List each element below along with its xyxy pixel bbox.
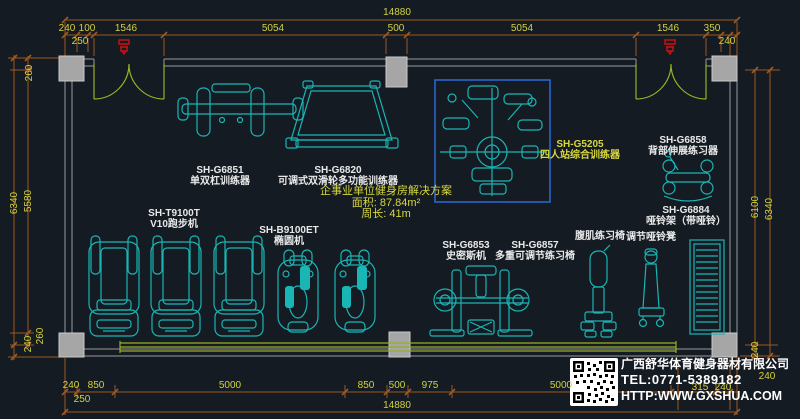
name: 背部伸展练习器 bbox=[648, 146, 718, 157]
dim-bottom: 850 bbox=[358, 381, 375, 391]
dim-left: 240 bbox=[24, 336, 34, 353]
model: SH-B9100ET bbox=[259, 225, 318, 236]
dim-right: 240 bbox=[751, 342, 761, 359]
equipment-sh-g6884 bbox=[690, 240, 724, 334]
name: 史密斯机 bbox=[442, 251, 489, 262]
dim-left: 5580 bbox=[24, 190, 34, 212]
solution-text: 企事业单位健身房解决方案 面积: 87.84m² 周长: 41m bbox=[320, 186, 452, 221]
dim-bottom: 240 bbox=[63, 381, 80, 391]
name: 腹肌练习椅 bbox=[575, 231, 625, 242]
dim-top-total: 14880 bbox=[383, 8, 411, 18]
name: 椭圆机 bbox=[259, 236, 318, 247]
column bbox=[59, 56, 84, 81]
label-sh-g6820: SH-G6820 可调式双滑轮多功能训练器 bbox=[278, 165, 398, 187]
column bbox=[386, 57, 407, 87]
dim-left: 6340 bbox=[10, 192, 20, 214]
dim-top: 1546 bbox=[657, 24, 679, 34]
dim-top: 5054 bbox=[511, 24, 533, 34]
label-sh-g5205: SH-G5205 四人站综合训练器 bbox=[540, 139, 620, 161]
label-sh-g6851: SH-G6851 单双杠训练器 bbox=[190, 165, 250, 187]
dim-right: 6340 bbox=[765, 198, 775, 220]
column bbox=[59, 333, 84, 357]
name: 哑铃架（带哑铃） bbox=[646, 216, 726, 227]
equipment-ab-bench bbox=[581, 245, 616, 337]
dim-bottom: 975 bbox=[422, 381, 439, 391]
label-sh-t9100t: SH-T9100T V10跑步机 bbox=[148, 208, 200, 230]
dim-top: 240 bbox=[59, 24, 76, 34]
label-sh-g6858: SH-G6858 背部伸展练习器 bbox=[648, 135, 718, 157]
mirror-strip bbox=[120, 341, 676, 353]
model: SH-G6857 bbox=[495, 240, 575, 251]
name: 多重可调节练习椅 bbox=[495, 251, 575, 262]
door-marker-icon bbox=[119, 40, 129, 54]
dim-bottom: 500 bbox=[389, 381, 406, 391]
company-web: HTTP:WWW.GXSHUA.COM bbox=[621, 388, 789, 404]
dim-top: 500 bbox=[388, 24, 405, 34]
dim-top: 350 bbox=[704, 24, 721, 34]
label-sh-b9100et: SH-B9100ET 椭圆机 bbox=[259, 225, 318, 247]
dim-top-sub: 250 bbox=[72, 37, 89, 47]
solution-perimeter: 周长: 41m bbox=[320, 209, 452, 221]
qr-code bbox=[570, 358, 618, 406]
column bbox=[712, 56, 737, 81]
solution-title: 企事业单位健身房解决方案 bbox=[320, 186, 452, 198]
company-info: 广西舒华体育健身器材有限公司 TEL:0771-5389182 HTTP:WWW… bbox=[621, 357, 789, 404]
dim-top: 100 bbox=[79, 24, 96, 34]
model: SH-G6853 bbox=[442, 240, 489, 251]
equipment-dumbbell-stool bbox=[639, 249, 664, 327]
equipment-sh-t9100t bbox=[89, 236, 264, 336]
label-ab-bench: 腹肌练习椅 bbox=[575, 231, 625, 242]
name: 四人站综合训练器 bbox=[540, 150, 620, 161]
equipment-sh-g6851 bbox=[178, 84, 303, 136]
equipment-sh-b9100et bbox=[278, 250, 375, 332]
dim-bottom-total: 14880 bbox=[383, 401, 411, 411]
label-dumbbell-stool: 调节哑铃凳 bbox=[626, 232, 676, 243]
equipment-sh-g5205 bbox=[435, 80, 550, 202]
company-tel: TEL:0771-5389182 bbox=[621, 372, 789, 388]
model: SH-T9100T bbox=[148, 208, 200, 219]
column bbox=[712, 333, 737, 357]
dim-top: 5054 bbox=[262, 24, 284, 34]
dim-left: 260 bbox=[36, 328, 46, 345]
model: SH-G6820 bbox=[278, 165, 398, 176]
equipment-sh-g6853 bbox=[430, 266, 532, 336]
dim-right: 6100 bbox=[751, 196, 761, 218]
model: SH-G6851 bbox=[190, 165, 250, 176]
dim-top: 1546 bbox=[115, 24, 137, 34]
name: V10跑步机 bbox=[148, 219, 200, 230]
column bbox=[389, 332, 410, 357]
name: 单双杠训练器 bbox=[190, 176, 250, 187]
dim-bottom-sub: 250 bbox=[74, 395, 91, 405]
dim-top-sub: 240 bbox=[719, 37, 736, 47]
label-sh-g6857: SH-G6857 多重可调节练习椅 bbox=[495, 240, 575, 262]
model: SH-G6884 bbox=[646, 205, 726, 216]
dim-bottom: 5000 bbox=[550, 381, 572, 391]
label-sh-g6853: SH-G6853 史密斯机 bbox=[442, 240, 489, 262]
company-name: 广西舒华体育健身器材有限公司 bbox=[621, 357, 789, 372]
floor-plan-canvas: 14880 240 100 1546 5054 500 5054 1546 35… bbox=[0, 0, 800, 419]
label-sh-g6884: SH-G6884 哑铃架（带哑铃） bbox=[646, 205, 726, 227]
dim-bottom: 850 bbox=[88, 381, 105, 391]
dim-left: 260 bbox=[25, 65, 35, 82]
model: SH-G6858 bbox=[648, 135, 718, 146]
equipment-sh-g6858 bbox=[663, 151, 713, 201]
door-marker-icon bbox=[665, 40, 675, 54]
name: 调节哑铃凳 bbox=[626, 232, 676, 243]
model: SH-G5205 bbox=[540, 139, 620, 150]
dim-bottom: 5000 bbox=[219, 381, 241, 391]
